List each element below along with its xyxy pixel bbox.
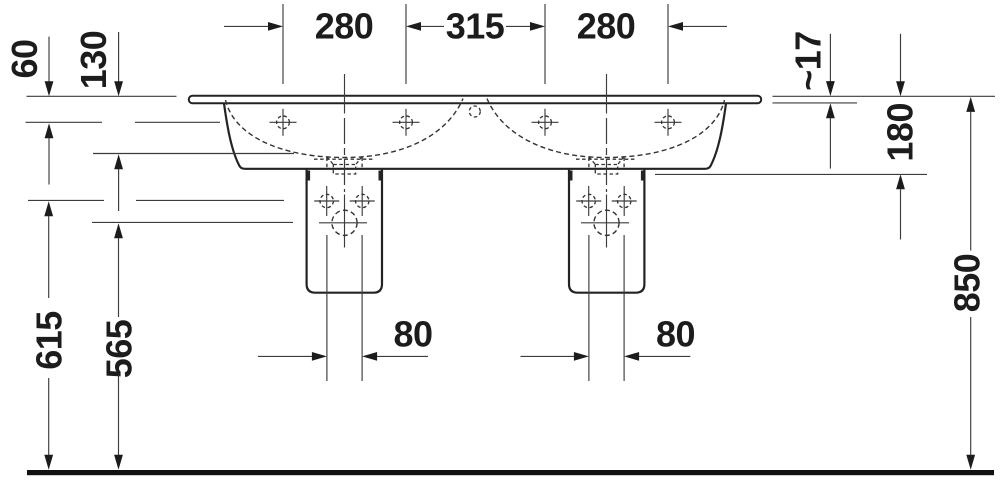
svg-text:565: 565 [99,319,140,378]
svg-text:850: 850 [947,254,988,313]
svg-text:315: 315 [446,5,505,46]
svg-text:180: 180 [880,103,921,162]
svg-text:280: 280 [315,5,374,46]
svg-text:130: 130 [73,31,114,90]
svg-text:~17: ~17 [788,31,829,91]
svg-text:280: 280 [577,5,636,46]
svg-text:80: 80 [656,314,695,355]
svg-text:60: 60 [4,39,45,78]
svg-text:80: 80 [393,314,432,355]
svg-text:615: 615 [29,311,70,370]
